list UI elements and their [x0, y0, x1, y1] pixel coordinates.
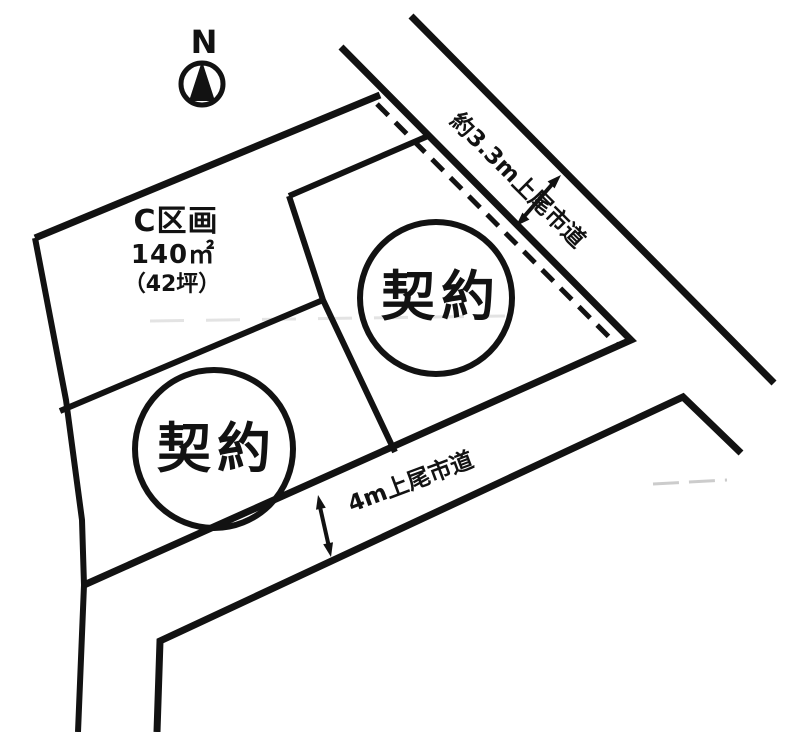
contract-stamp-east-label: 契約	[381, 270, 501, 324]
compass-icon	[181, 61, 223, 105]
plot-divider-east-boundary	[289, 196, 395, 452]
plot-c-name-label: C区画	[133, 207, 218, 237]
plot-divider-south-boundary	[60, 300, 323, 411]
parcel-west-boundary	[35, 238, 84, 732]
site-plan-linework	[0, 0, 794, 732]
contract-stamp-west-label: 契約	[157, 422, 277, 476]
site-plan: N C区画 140㎡ （42坪） 契約 契約 約3.3m上尾市道 4m上尾市道	[0, 0, 794, 732]
scan-smudge-line	[653, 480, 727, 484]
lower-road-width-arrow	[316, 495, 333, 557]
compass-north-label: N	[191, 26, 218, 58]
plot-b-north-boundary	[289, 136, 428, 196]
plot-c-area-sqm-label: 140㎡	[131, 242, 215, 268]
plot-c-area-tsubo-label: （42坪）	[124, 274, 221, 296]
